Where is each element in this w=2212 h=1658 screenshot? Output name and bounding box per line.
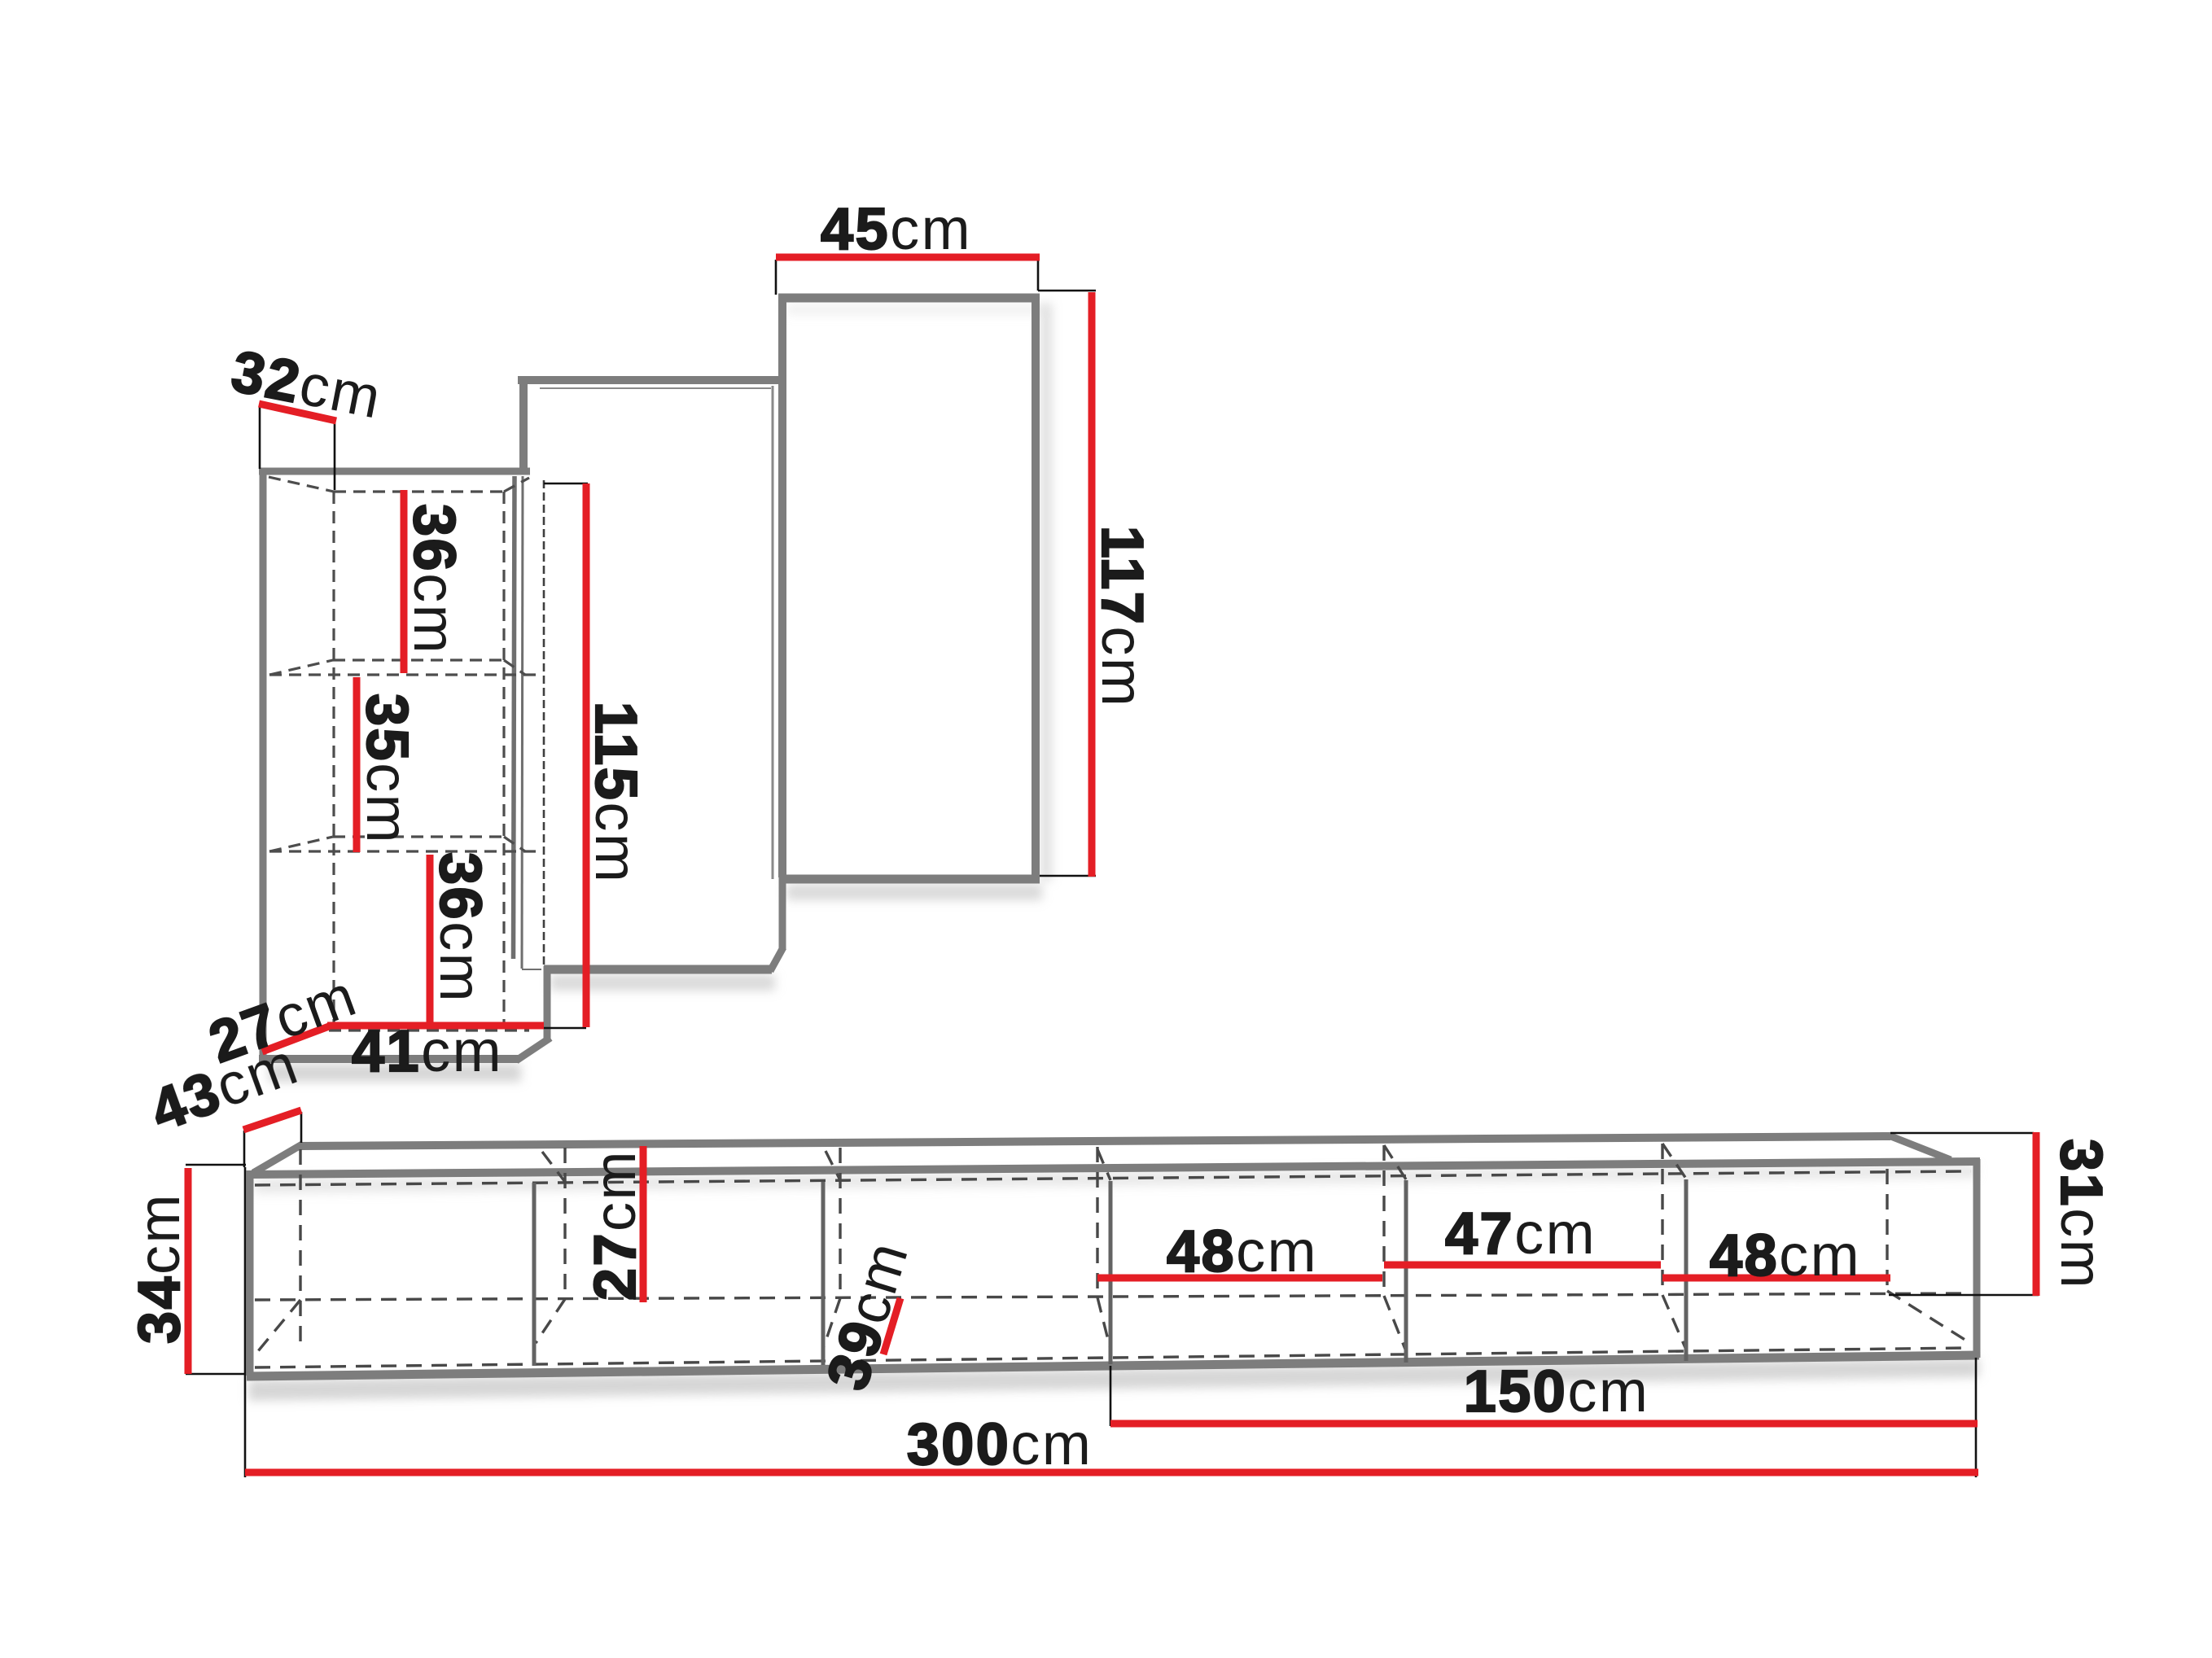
svg-text:41cm: 41cm [352,1019,503,1084]
svg-text:117cm: 117cm [1089,526,1154,709]
svg-text:300cm: 300cm [907,1412,1093,1477]
svg-text:48cm: 48cm [1167,1219,1318,1284]
svg-text:34cm: 34cm [127,1192,192,1344]
svg-text:36cm: 36cm [427,852,493,1004]
svg-text:35cm: 35cm [354,693,419,845]
svg-text:27cm: 27cm [583,1149,648,1301]
svg-text:115cm: 115cm [583,702,648,885]
svg-text:36cm: 36cm [401,504,466,655]
svg-text:47cm: 47cm [1445,1201,1597,1266]
svg-text:150cm: 150cm [1464,1359,1650,1424]
svg-text:45cm: 45cm [821,197,972,262]
svg-text:48cm: 48cm [1710,1223,1861,1288]
svg-text:31cm: 31cm [2048,1139,2113,1290]
